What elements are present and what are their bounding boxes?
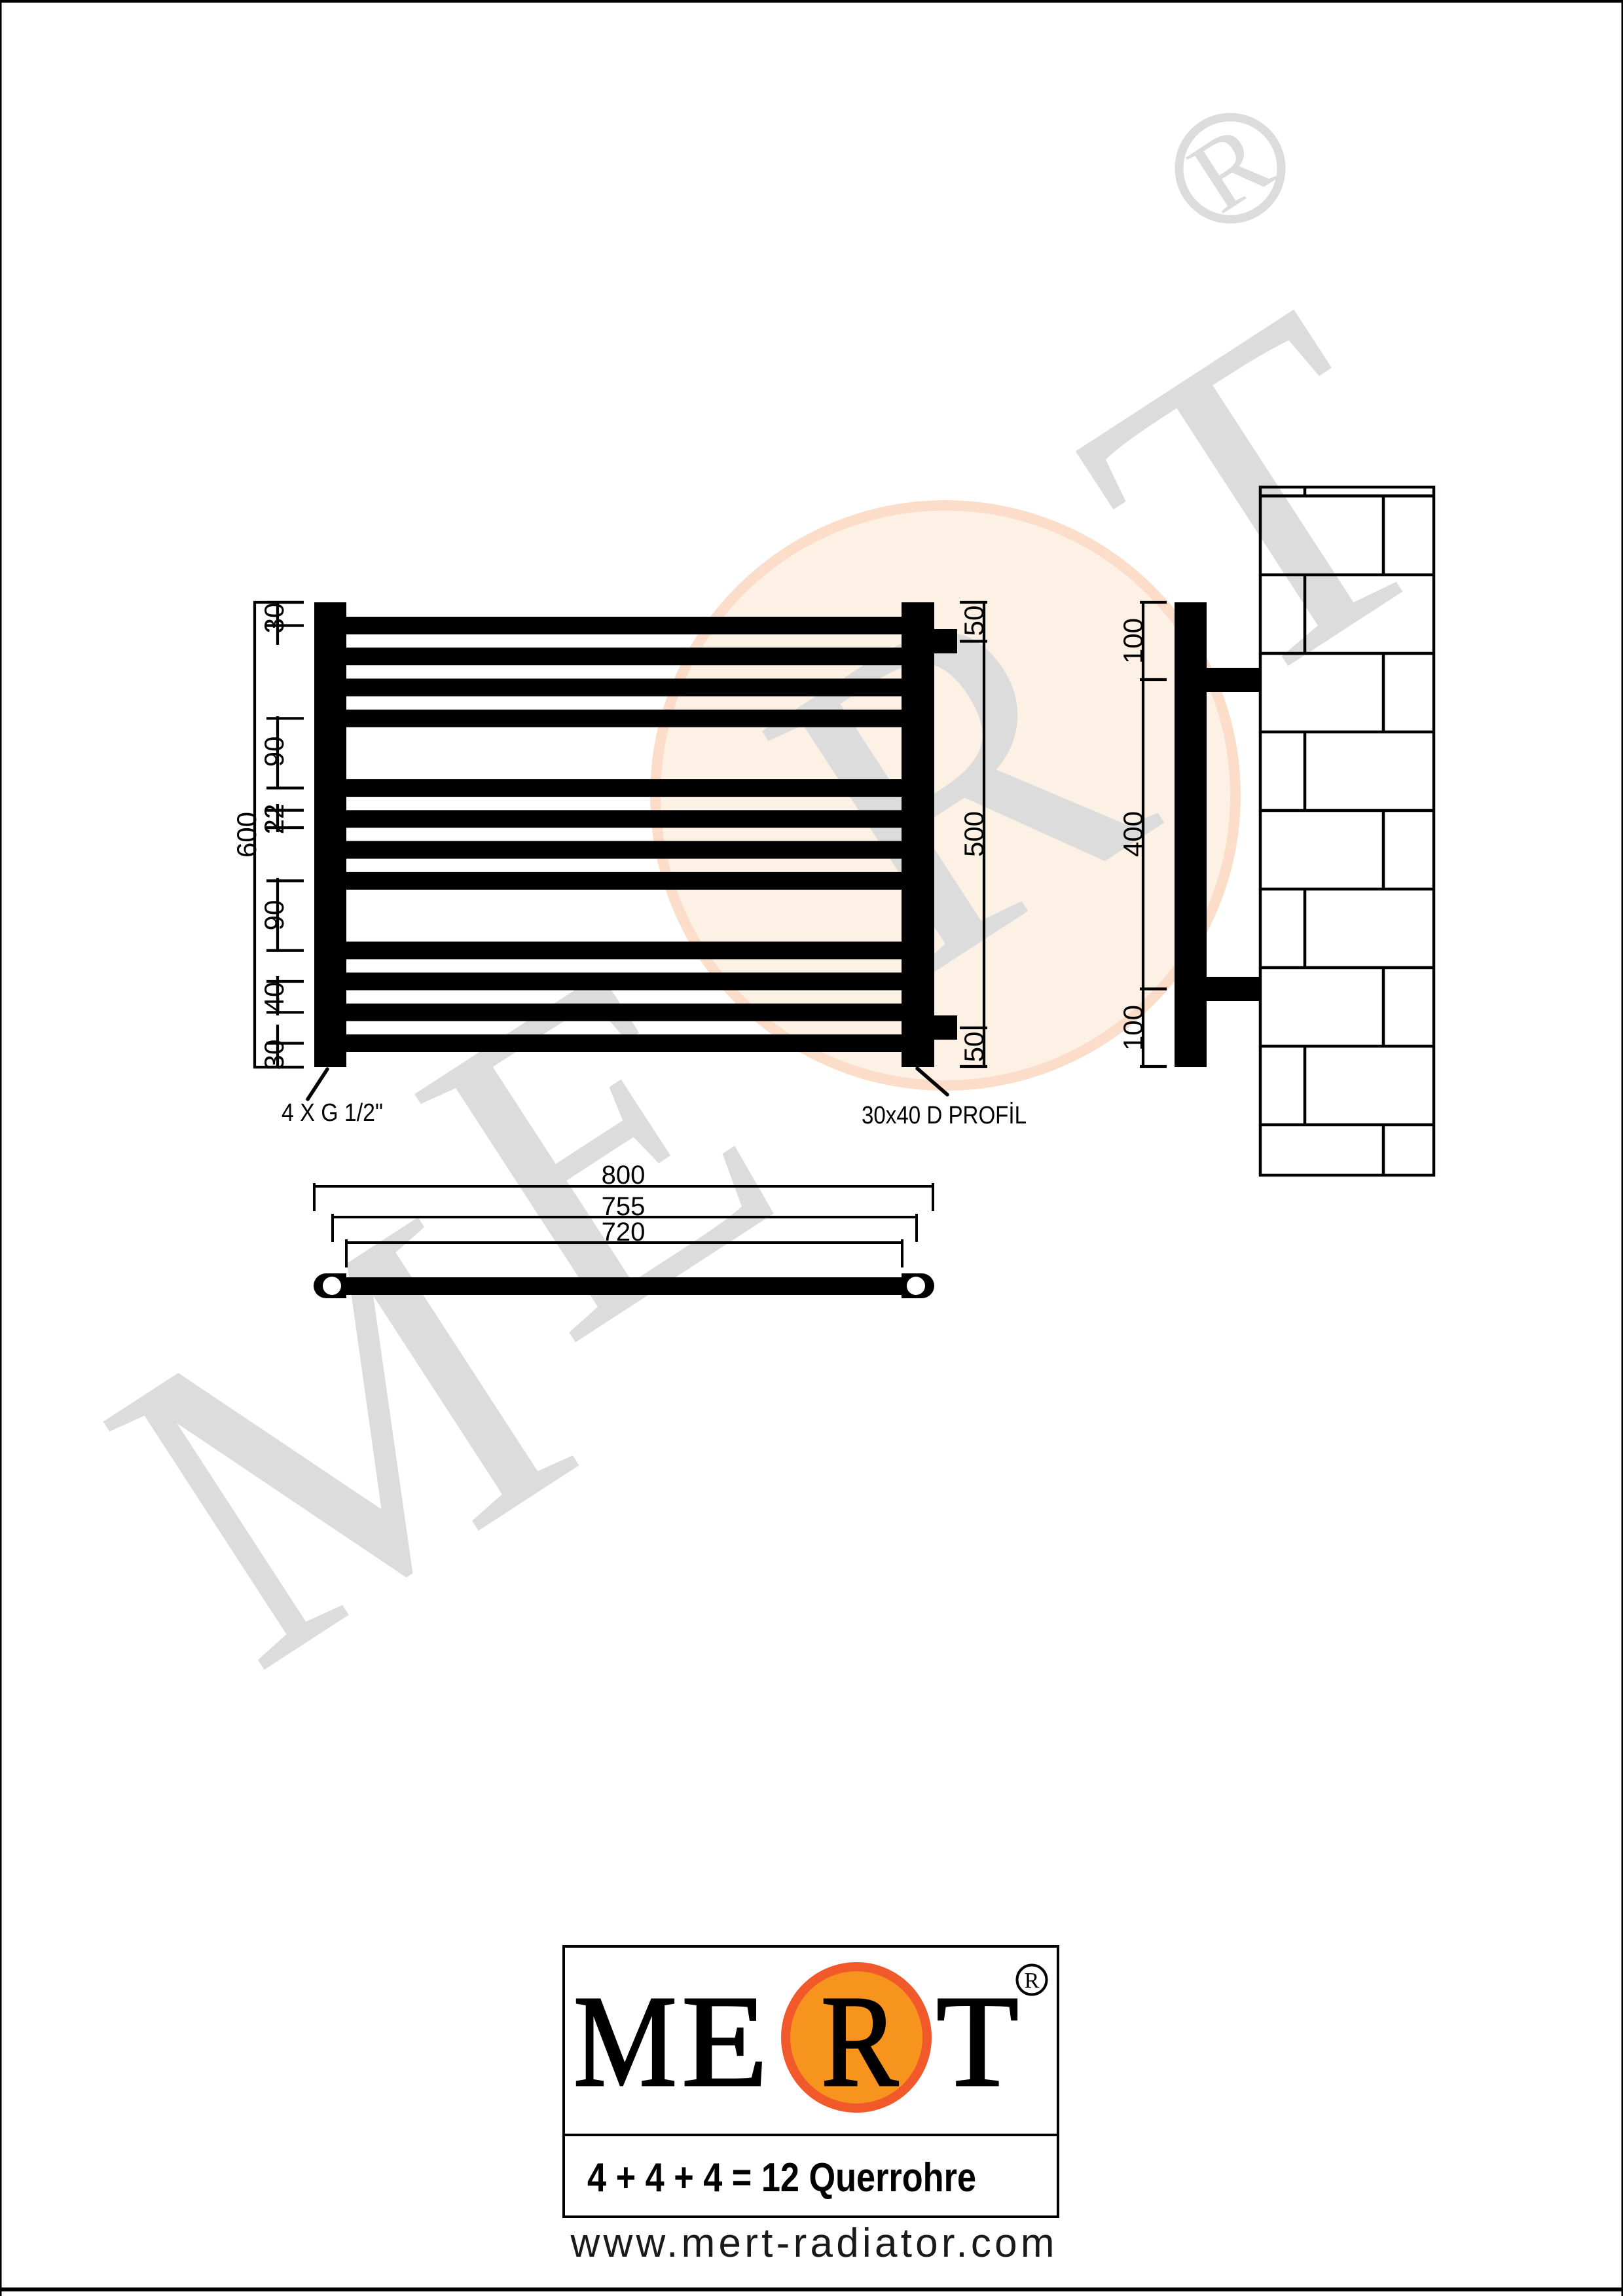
svg-text:E: E [682,1969,768,2114]
svg-text:800: 800 [602,1161,646,1190]
svg-text:50: 50 [958,606,989,636]
svg-text:90: 90 [259,737,289,767]
svg-text:100: 100 [1118,618,1148,664]
svg-text:30: 30 [259,603,289,634]
svg-text:4 + 4 + 4 = 12 Querrohre: 4 + 4 + 4 = 12 Querrohre [587,2155,976,2200]
svg-text:500: 500 [958,811,989,857]
svg-text:100: 100 [1118,1005,1148,1051]
svg-text:50: 50 [958,1032,989,1063]
svg-text:720: 720 [602,1218,646,1247]
svg-text:40: 40 [259,982,289,1013]
svg-text:M: M [574,1969,677,2114]
svg-text:600: 600 [231,812,262,858]
svg-text:755: 755 [602,1192,646,1221]
svg-text:T: T [936,1969,1019,2114]
svg-text:R: R [821,1969,899,2114]
svg-text:30x40 D PROFİL: 30x40 D PROFİL [862,1101,1027,1129]
svg-text:R: R [1025,1969,1040,1993]
svg-text:4 X G 1/2": 4 X G 1/2" [282,1099,383,1127]
svg-text:400: 400 [1118,811,1148,857]
svg-text:30: 30 [259,1040,289,1070]
svg-text:22: 22 [259,804,289,835]
svg-text:90: 90 [259,900,289,931]
svg-text:www.mert-radiator.com: www.mert-radiator.com [570,2221,1055,2266]
